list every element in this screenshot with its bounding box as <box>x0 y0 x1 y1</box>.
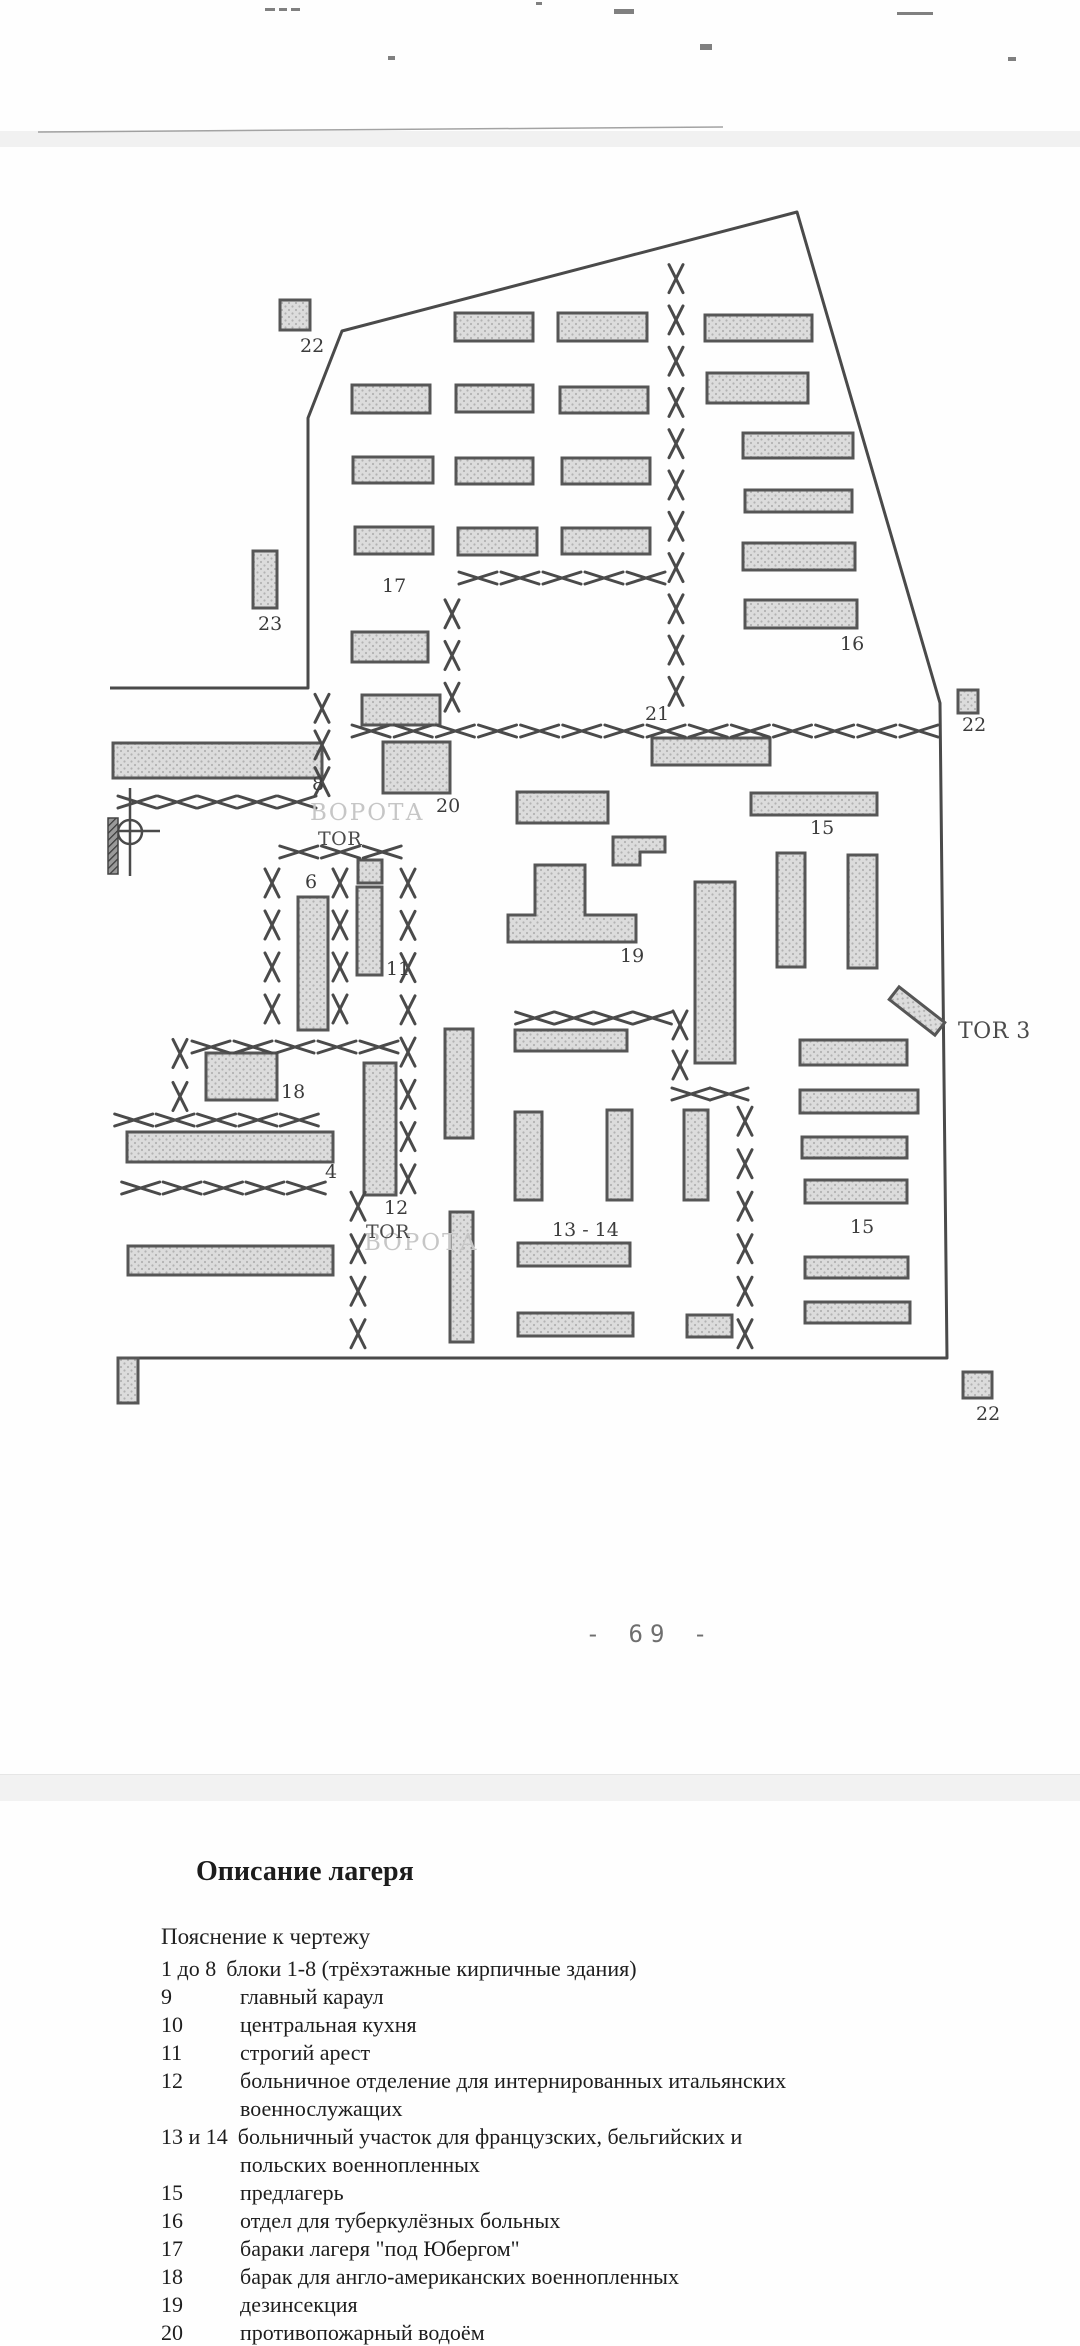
gate-label: TOR 3 <box>958 1019 1031 1044</box>
building <box>777 853 805 967</box>
building-number-label: 15 <box>850 1216 874 1238</box>
legend-item-text: военнослужащих <box>240 2096 403 2121</box>
legend-item-number: 10 <box>161 2012 240 2038</box>
legend-item: 10центральная кухня <box>161 2012 1021 2038</box>
page-number: - 69 - <box>545 1620 755 1648</box>
fence-line <box>192 1041 398 1053</box>
building <box>127 1132 333 1162</box>
building-number-label: 15 <box>810 817 834 839</box>
fence-line <box>265 869 279 1023</box>
building <box>128 1246 333 1275</box>
building <box>958 690 978 713</box>
building-number-label: 6 <box>305 871 317 893</box>
building-number-label: 19 <box>620 945 644 967</box>
building <box>705 315 812 341</box>
fence-line <box>459 572 665 584</box>
legend-item-text: блоки 1-8 (трёхэтажные кирпичные здания) <box>226 1956 636 1981</box>
fence-line <box>673 1011 687 1079</box>
building <box>518 1313 633 1336</box>
scan-speck-artifact <box>700 44 712 50</box>
building-number-label: 20 <box>436 795 460 817</box>
legend-item: польских военнопленных <box>161 2152 1080 2178</box>
legend-item-number: 20 <box>161 2320 240 2346</box>
fence-line <box>118 796 316 808</box>
legend-item-text: дезинсекция <box>240 2292 358 2317</box>
building <box>805 1180 907 1203</box>
legend-item: 1 до 8блоки 1-8 (трёхэтажные кирпичные з… <box>161 1956 1021 1982</box>
building <box>889 987 945 1035</box>
building <box>805 1302 910 1323</box>
scan-edge-line <box>38 127 723 132</box>
legend-item-text: больничное отделение для интернированных… <box>240 2068 786 2093</box>
legend-item-text: строгий арест <box>240 2040 370 2065</box>
building <box>515 1112 542 1200</box>
legend-item-number: 15 <box>161 2180 240 2206</box>
fence-line <box>173 1040 187 1111</box>
legend-item-text: больничный участок для французских, бель… <box>238 2124 743 2149</box>
building <box>352 385 430 413</box>
building-number-label: 12 <box>384 1197 408 1219</box>
building <box>253 551 277 608</box>
building <box>355 527 433 554</box>
legend-item: 20противопожарный водоём <box>161 2320 1021 2346</box>
scanned-page: 222317162182061119151841213 - 14152222ВО… <box>0 0 1080 2340</box>
legend-item-number: 19 <box>161 2292 240 2318</box>
fence-line <box>115 1114 319 1126</box>
legend-item: 11строгий арест <box>161 2040 1021 2066</box>
scan-speck-artifact <box>1008 57 1016 61</box>
building <box>560 387 648 413</box>
building <box>515 1030 627 1051</box>
building <box>298 897 328 1030</box>
building <box>707 373 808 403</box>
building <box>508 865 636 942</box>
legend-item-text: главный караул <box>240 1984 384 2009</box>
legend-item: 13 и 14больничный участок для французски… <box>161 2124 1021 2150</box>
legend-item-number: 17 <box>161 2236 240 2262</box>
fence-line <box>122 1182 326 1194</box>
gate-label: TOR <box>366 1221 410 1243</box>
building <box>805 1257 908 1278</box>
building <box>280 300 310 330</box>
building <box>357 887 382 975</box>
building-number-label: 18 <box>281 1081 305 1103</box>
scan-speck-artifact <box>388 56 395 60</box>
scan-speck-artifact <box>614 9 634 14</box>
legend-item-text: центральная кухня <box>240 2012 417 2037</box>
section-title: Описание лагеря <box>196 1856 414 1888</box>
hatched-post <box>108 818 118 874</box>
legend-item: 12больничное отделение для интернированн… <box>161 2068 1021 2094</box>
building <box>743 433 853 458</box>
fence-line <box>333 869 347 1023</box>
legend-item-number: 18 <box>161 2264 240 2290</box>
building-number-label: 21 <box>645 703 669 725</box>
building <box>206 1053 277 1100</box>
building <box>607 1110 632 1200</box>
fence-line <box>738 1107 752 1348</box>
building <box>963 1372 992 1398</box>
building <box>745 490 852 512</box>
legend-item-text: предлагерь <box>240 2180 344 2205</box>
building <box>562 528 650 554</box>
building <box>684 1110 708 1200</box>
building <box>362 695 440 725</box>
building <box>562 458 650 484</box>
fence-line <box>401 869 415 1193</box>
scan-speck-artifact <box>897 12 933 15</box>
legend-item: 17бараки лагеря "под Юбергом" <box>161 2236 1021 2262</box>
building <box>118 1358 138 1403</box>
scan-speck-artifact <box>291 8 300 11</box>
legend-item: 16отдел для туберкулёзных больных <box>161 2208 1021 2234</box>
building <box>445 1029 473 1138</box>
fence-line <box>351 1192 365 1348</box>
fence-line <box>516 1012 672 1024</box>
building <box>800 1040 907 1065</box>
building <box>800 1090 918 1113</box>
building <box>352 632 428 662</box>
building <box>364 1063 396 1195</box>
building <box>517 792 608 823</box>
building <box>458 528 537 555</box>
building-number-label: 11 <box>386 958 410 980</box>
legend-item-text: отдел для туберкулёзных больных <box>240 2208 560 2233</box>
legend-item: 9главный караул <box>161 1984 1021 2010</box>
scan-speck-artifact <box>265 8 275 11</box>
legend-item-text: противопожарный водоём <box>240 2320 485 2345</box>
gate-label-faint: ВОРОТА <box>310 800 425 826</box>
building <box>518 1243 630 1266</box>
legend-item: 19дезинсекция <box>161 2292 1021 2318</box>
legend-item-number: 16 <box>161 2208 240 2234</box>
building <box>113 743 322 778</box>
legend-item: военнослужащих <box>161 2096 1080 2122</box>
building <box>695 882 735 1063</box>
building-number-label: 4 <box>325 1161 337 1183</box>
legend-item: 18барак для англо-американских военнопле… <box>161 2264 1021 2290</box>
building <box>745 600 857 628</box>
fence-line <box>352 725 938 737</box>
building <box>687 1315 732 1337</box>
building <box>456 385 533 412</box>
building-number-label: 8 <box>312 773 324 795</box>
fence-line <box>669 265 683 706</box>
building-number-label: 22 <box>300 335 324 357</box>
building <box>652 738 770 765</box>
legend-item-number: 9 <box>161 1984 240 2010</box>
building <box>802 1137 907 1158</box>
building <box>456 458 533 484</box>
building <box>383 742 450 793</box>
fence-line <box>445 600 459 711</box>
building-number-label: 16 <box>840 633 864 655</box>
legend-item-number: 12 <box>161 2068 240 2094</box>
building-number-label: 23 <box>258 613 282 635</box>
legend-item-text: бараки лагеря "под Юбергом" <box>240 2236 520 2261</box>
building <box>743 543 855 570</box>
fence-line <box>672 1088 748 1100</box>
scan-speck-artifact <box>279 8 287 11</box>
legend-item-text: польских военнопленных <box>240 2152 480 2177</box>
gate-label: TOR <box>318 828 362 850</box>
building-number-label: 17 <box>382 575 406 597</box>
legend-item-number: 11 <box>161 2040 240 2066</box>
building <box>455 313 533 341</box>
legend-item: 15предлагерь <box>161 2180 1021 2206</box>
building <box>848 855 877 968</box>
building <box>353 457 433 483</box>
building-number-label: 13 - 14 <box>552 1219 619 1241</box>
scan-speck-artifact <box>536 2 542 5</box>
legend-item-number: 13 и 14 <box>161 2124 228 2150</box>
building-number-label: 22 <box>976 1403 1000 1425</box>
building <box>751 793 877 815</box>
building <box>558 313 647 341</box>
legend-item-number: 1 до 8 <box>161 1956 216 1982</box>
building <box>613 837 665 865</box>
building <box>358 860 382 883</box>
building-number-label: 22 <box>962 714 986 736</box>
legend-subtitle: Пояснение к чертежу <box>161 1924 370 1950</box>
legend-item-text: барак для англо-американских военнопленн… <box>240 2264 679 2289</box>
